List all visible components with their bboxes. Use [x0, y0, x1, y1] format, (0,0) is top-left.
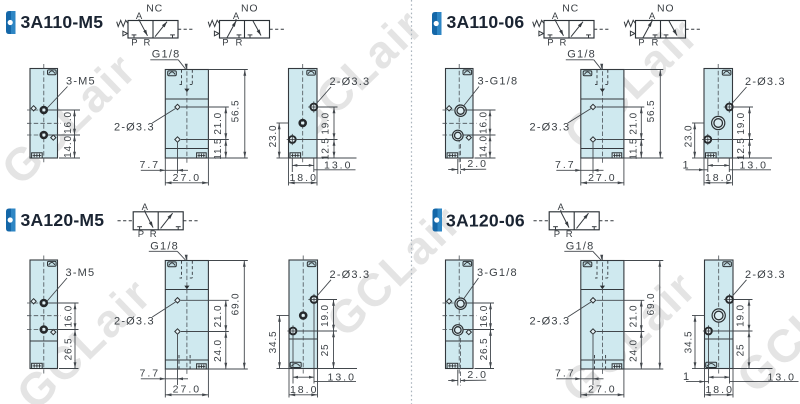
svg-text:2-Ø3.3: 2-Ø3.3	[530, 122, 571, 134]
svg-text:11.5: 11.5	[213, 138, 224, 160]
svg-text:G1/8: G1/8	[150, 240, 179, 252]
svg-text:2-Ø3.3: 2-Ø3.3	[745, 269, 786, 281]
svg-text:P: P	[547, 38, 553, 49]
svg-text:P: P	[222, 38, 228, 49]
svg-text:21.0: 21.0	[213, 112, 224, 135]
svg-text:2-Ø3.3: 2-Ø3.3	[114, 316, 155, 328]
svg-text:P: P	[554, 229, 560, 240]
svg-text:NC: NC	[562, 3, 579, 15]
svg-text:19.0: 19.0	[320, 304, 331, 327]
svg-text:7.7: 7.7	[555, 368, 576, 380]
svg-text:12.5: 12.5	[321, 137, 332, 160]
svg-text:23.0: 23.0	[268, 125, 279, 148]
svg-text:27.0: 27.0	[173, 172, 201, 184]
svg-text:NO: NO	[657, 3, 674, 15]
svg-text:3-G1/8: 3-G1/8	[478, 76, 519, 88]
svg-text:P: P	[138, 229, 144, 240]
svg-text:16.0: 16.0	[64, 305, 75, 328]
svg-text:2.0: 2.0	[467, 158, 488, 170]
svg-text:7.7: 7.7	[140, 368, 161, 380]
svg-text:P: P	[638, 38, 644, 49]
svg-text:69.0: 69.0	[230, 293, 241, 316]
svg-text:26.5: 26.5	[479, 338, 490, 361]
svg-text:NO: NO	[241, 3, 258, 15]
svg-text:2-Ø3.3: 2-Ø3.3	[745, 76, 786, 88]
svg-text:19.0: 19.0	[736, 112, 747, 135]
svg-text:27.0: 27.0	[173, 383, 201, 395]
svg-text:3-G1/8: 3-G1/8	[477, 267, 518, 279]
svg-text:G1/8: G1/8	[152, 49, 181, 61]
svg-text:3A120-M5: 3A120-M5	[21, 210, 105, 230]
svg-text:7.7: 7.7	[555, 159, 576, 171]
svg-text:3-M5: 3-M5	[66, 267, 96, 279]
svg-text:27.0: 27.0	[588, 172, 616, 184]
svg-text:G1/8: G1/8	[566, 240, 595, 252]
svg-text:19.0: 19.0	[321, 112, 332, 135]
svg-text:3A110-06: 3A110-06	[447, 12, 525, 32]
svg-text:26.5: 26.5	[64, 338, 75, 361]
svg-text:3A110-M5: 3A110-M5	[21, 12, 104, 32]
svg-text:21.0: 21.0	[628, 305, 639, 328]
svg-text:14.0: 14.0	[479, 135, 490, 158]
svg-text:R: R	[236, 38, 243, 49]
svg-text:25: 25	[320, 344, 331, 357]
svg-text:16.0: 16.0	[479, 305, 490, 328]
svg-text:69.0: 69.0	[646, 293, 657, 316]
svg-text:16.0: 16.0	[63, 111, 74, 134]
svg-text:19.0: 19.0	[736, 304, 747, 327]
svg-text:2-Ø3.3: 2-Ø3.3	[530, 316, 571, 328]
svg-text:R: R	[566, 229, 573, 240]
svg-text:2.0: 2.0	[467, 369, 488, 381]
svg-text:23.0: 23.0	[683, 125, 694, 148]
svg-text:27.0: 27.0	[588, 383, 616, 395]
svg-text:3-M5: 3-M5	[66, 76, 96, 88]
svg-text:2-Ø3.3: 2-Ø3.3	[330, 76, 371, 88]
svg-text:R: R	[144, 38, 151, 49]
svg-text:25: 25	[736, 344, 747, 357]
svg-text:G1/8: G1/8	[567, 49, 596, 61]
svg-text:2-Ø3.3: 2-Ø3.3	[330, 269, 371, 281]
svg-text:12.5: 12.5	[736, 137, 747, 160]
svg-text:7.7: 7.7	[140, 159, 161, 171]
svg-text:56.5: 56.5	[230, 100, 241, 123]
svg-text:P: P	[131, 38, 137, 49]
svg-text:34.5: 34.5	[268, 331, 279, 354]
svg-text:56.5: 56.5	[646, 100, 657, 123]
svg-text:14.0: 14.0	[63, 135, 74, 158]
svg-text:R: R	[560, 38, 567, 49]
svg-text:2-Ø3.3: 2-Ø3.3	[114, 122, 155, 134]
svg-text:3A120-06: 3A120-06	[446, 211, 525, 231]
svg-text:11.5: 11.5	[628, 138, 639, 160]
svg-text:34.5: 34.5	[684, 331, 695, 354]
svg-text:NC: NC	[146, 3, 163, 15]
svg-text:R: R	[150, 229, 157, 240]
svg-text:24.0: 24.0	[213, 339, 224, 362]
svg-text:21.0: 21.0	[213, 305, 224, 328]
svg-text:16.0: 16.0	[479, 111, 490, 134]
svg-text:R: R	[652, 38, 659, 49]
svg-text:24.0: 24.0	[628, 339, 639, 362]
svg-text:21.0: 21.0	[628, 112, 639, 135]
